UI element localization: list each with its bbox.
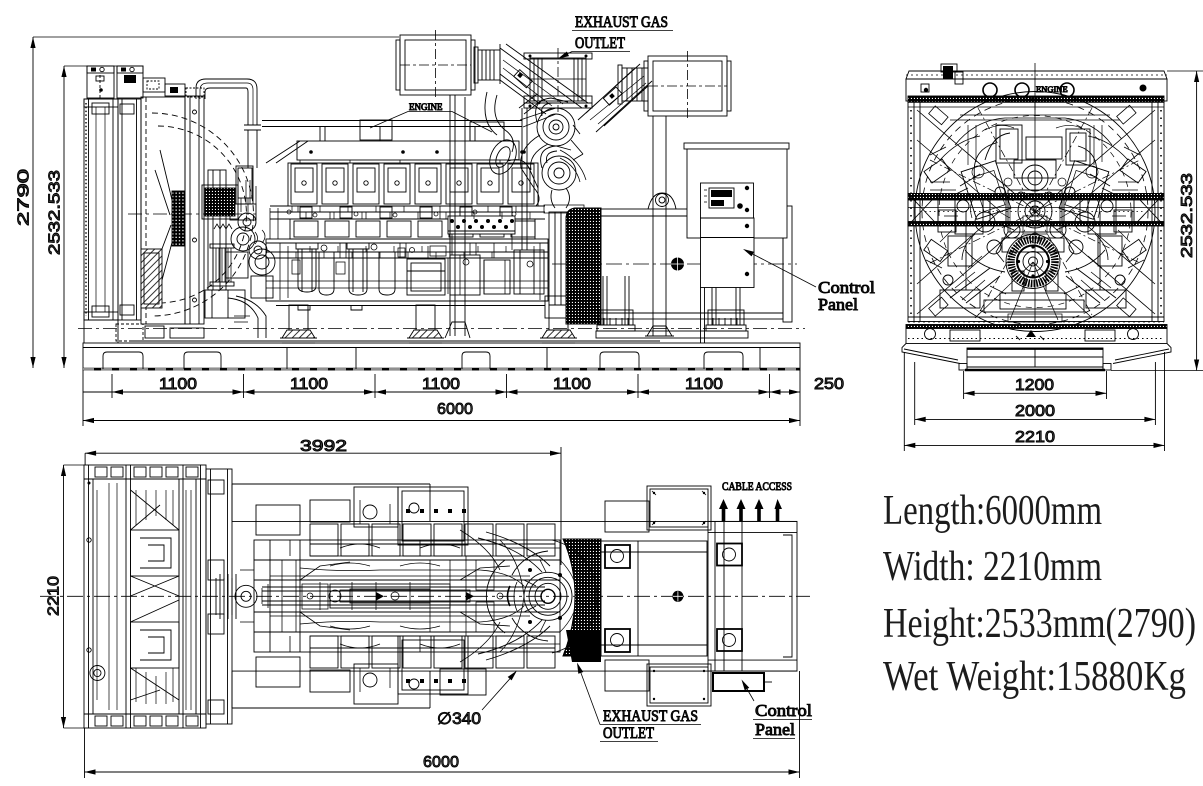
svg-text:OUTLET: OUTLET <box>575 35 625 52</box>
svg-text:250: 250 <box>814 376 844 393</box>
svg-text:1100: 1100 <box>422 376 460 393</box>
svg-text:EXHAUST GAS: EXHAUST GAS <box>603 708 698 725</box>
svg-text:Panel: Panel <box>755 720 795 739</box>
svg-text:Panel: Panel <box>818 295 858 314</box>
svg-text:3992: 3992 <box>300 438 347 455</box>
svg-text:Control: Control <box>755 701 812 720</box>
svg-text:CABLE ACCESS: CABLE ACCESS <box>722 481 792 493</box>
svg-text:1100: 1100 <box>685 376 723 393</box>
svg-text:Length:6000mm: Length:6000mm <box>883 488 1102 534</box>
svg-text:EXHAUST GAS: EXHAUST GAS <box>575 14 668 31</box>
svg-text:1200: 1200 <box>1015 377 1054 394</box>
svg-text:ENGINE: ENGINE <box>409 102 443 112</box>
svg-text:2532.533: 2532.533 <box>47 170 64 255</box>
svg-text:2532.533: 2532.533 <box>1179 173 1196 258</box>
svg-text:6000: 6000 <box>437 401 473 418</box>
svg-text:Height:2533mm(2790): Height:2533mm(2790) <box>883 601 1196 647</box>
svg-text:1100: 1100 <box>553 376 591 393</box>
svg-text:Wet Weight:15880Kg: Wet Weight:15880Kg <box>883 654 1186 700</box>
svg-text:2210: 2210 <box>1015 429 1055 446</box>
svg-text:2790: 2790 <box>16 168 33 226</box>
svg-text:2000: 2000 <box>1015 403 1055 420</box>
svg-text:∅340: ∅340 <box>437 710 481 728</box>
svg-text:OUTLET: OUTLET <box>603 725 654 742</box>
svg-text:2210: 2210 <box>46 576 63 616</box>
svg-text:1100: 1100 <box>290 376 328 393</box>
svg-text:1100: 1100 <box>159 376 197 393</box>
svg-text:Width: 2210mm: Width: 2210mm <box>883 544 1102 590</box>
svg-text:6000: 6000 <box>423 754 459 771</box>
